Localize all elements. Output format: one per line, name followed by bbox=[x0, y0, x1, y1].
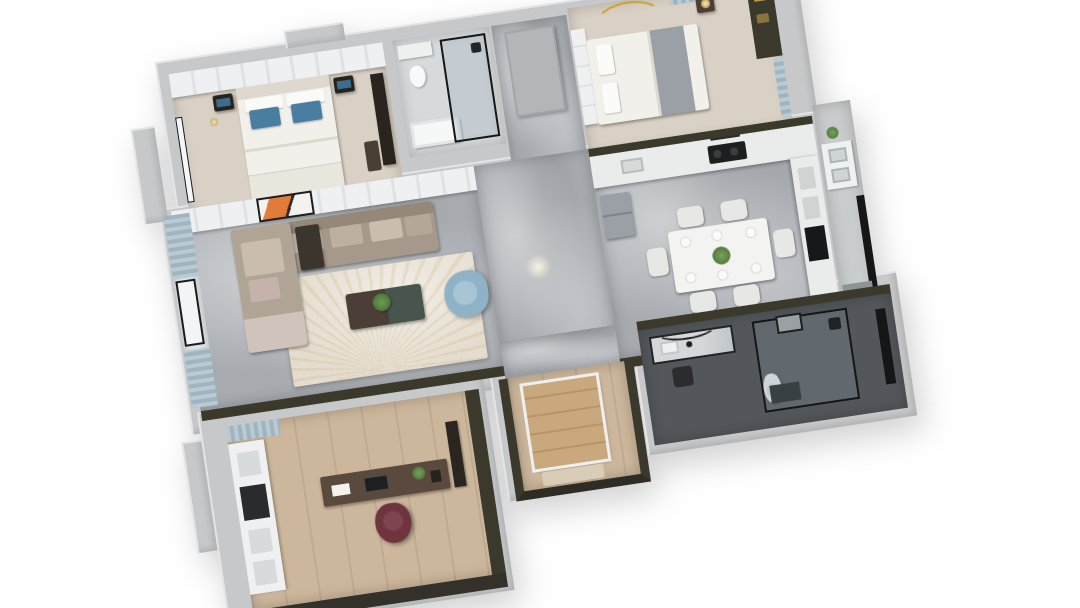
room-study bbox=[225, 389, 508, 608]
wall-lamp bbox=[210, 118, 219, 127]
utility-plant bbox=[826, 126, 840, 140]
bath2-black-window bbox=[875, 308, 896, 385]
desk bbox=[320, 458, 451, 507]
sink-basin-2 bbox=[831, 167, 851, 184]
vanity bbox=[397, 41, 433, 60]
cabinet-niche-1 bbox=[797, 166, 816, 190]
desk-papers bbox=[331, 483, 350, 497]
closet-gold-item-2 bbox=[756, 13, 769, 24]
burner-1 bbox=[713, 149, 722, 158]
shelf-niche-3 bbox=[253, 559, 278, 586]
vanity-stool bbox=[672, 365, 695, 388]
second-shower-head bbox=[828, 317, 842, 331]
pillow-blue-left bbox=[249, 106, 281, 129]
counter-sink-left bbox=[620, 157, 644, 174]
vanity-faucet bbox=[686, 341, 693, 348]
refrigerator bbox=[599, 192, 635, 240]
pillow-bottom bbox=[601, 82, 621, 114]
duvet-band bbox=[245, 136, 338, 153]
sink-unit bbox=[821, 140, 857, 190]
dining-chair-1 bbox=[676, 205, 705, 229]
black-appliance bbox=[804, 225, 829, 262]
desk-lamp bbox=[430, 469, 442, 482]
sink-basin-1 bbox=[828, 147, 848, 164]
range-hood bbox=[709, 129, 740, 141]
room-living bbox=[171, 166, 505, 421]
nightstand-right bbox=[333, 75, 355, 94]
pillow-blue-right bbox=[290, 100, 322, 123]
apartment-floor-plan bbox=[135, 0, 915, 608]
room-bathroom-main bbox=[392, 26, 506, 157]
dresser bbox=[364, 140, 382, 172]
place-setting-2 bbox=[712, 230, 722, 240]
chair-seat-pad bbox=[382, 510, 405, 533]
second-shower bbox=[752, 308, 861, 413]
place-setting-1 bbox=[680, 237, 690, 247]
burner-2 bbox=[730, 147, 739, 156]
cabinet-niche-2 bbox=[802, 196, 821, 220]
second-shower-bench bbox=[769, 381, 801, 403]
nightstand-right-drawer bbox=[337, 79, 352, 89]
place-setting-5 bbox=[718, 270, 728, 280]
fridge-split bbox=[602, 211, 632, 217]
entry-wood-closet bbox=[523, 375, 609, 469]
pillow-top bbox=[595, 44, 615, 76]
floor-plan-render-page: { "scene": { "kind": "3d-top-down-apartm… bbox=[0, 0, 1080, 608]
monitor bbox=[365, 475, 389, 491]
desk-plant bbox=[411, 466, 426, 481]
chaise-cushion bbox=[240, 238, 285, 278]
sofa-cushion-2 bbox=[329, 223, 364, 248]
place-setting-6 bbox=[751, 263, 761, 273]
cooktop bbox=[707, 141, 747, 164]
double-bed bbox=[235, 75, 345, 204]
dining-table bbox=[667, 217, 775, 293]
room-entry bbox=[498, 360, 651, 502]
shelf-niche-2 bbox=[248, 527, 273, 554]
chaise-pillow bbox=[248, 276, 281, 302]
dining-chair-6 bbox=[772, 228, 796, 259]
double-bed-2 bbox=[586, 24, 709, 126]
sofa-cushion-3 bbox=[369, 218, 404, 243]
sofa-cushion-4 bbox=[404, 213, 433, 237]
ceiling-light-glow bbox=[523, 252, 553, 282]
place-setting-3 bbox=[746, 227, 756, 237]
place-setting-4 bbox=[686, 273, 696, 283]
nightstand-left bbox=[212, 93, 234, 112]
dining-chair-5 bbox=[646, 247, 670, 278]
closet-gold-item-1 bbox=[753, 0, 766, 2]
vanity-sink bbox=[660, 340, 680, 356]
toilet-main bbox=[408, 64, 427, 88]
maroon-office-chair bbox=[373, 501, 415, 546]
shelf-niche-1 bbox=[236, 450, 261, 477]
shelf-tv-square bbox=[239, 483, 270, 520]
centerpiece-plant bbox=[711, 245, 731, 265]
wall-bump-master-window bbox=[130, 126, 168, 224]
shower-fixture bbox=[470, 42, 481, 53]
dining-chair-2 bbox=[720, 198, 749, 222]
nightstand-left-drawer bbox=[216, 97, 231, 107]
door bbox=[504, 25, 566, 117]
render-canvas bbox=[0, 0, 1080, 608]
armchair-seat bbox=[452, 279, 479, 306]
